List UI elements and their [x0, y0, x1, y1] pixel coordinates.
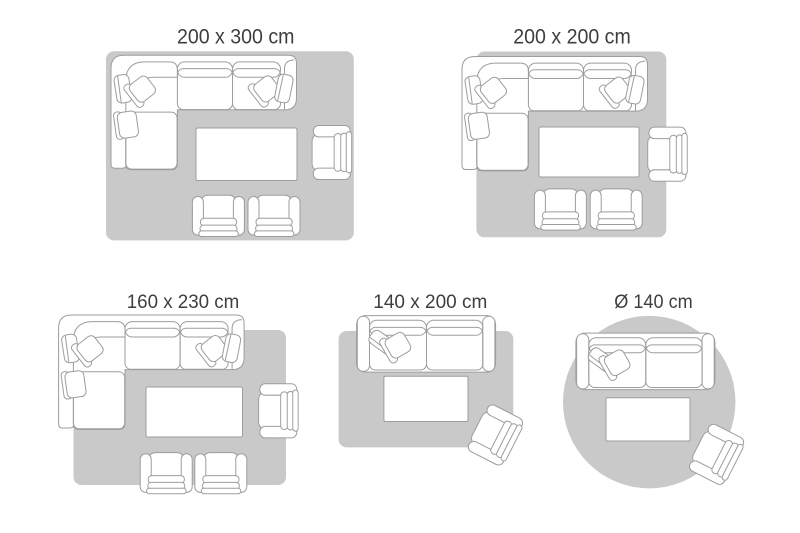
svg-text:200 x 200 cm: 200 x 200 cm	[513, 24, 631, 48]
svg-text:200 x 300 cm: 200 x 300 cm	[177, 24, 295, 48]
svg-text:140 x 200 cm: 140 x 200 cm	[373, 291, 487, 313]
svg-text:160 x 230 cm: 160 x 230 cm	[127, 291, 240, 313]
svg-text:Ø 140 cm: Ø 140 cm	[614, 291, 693, 313]
